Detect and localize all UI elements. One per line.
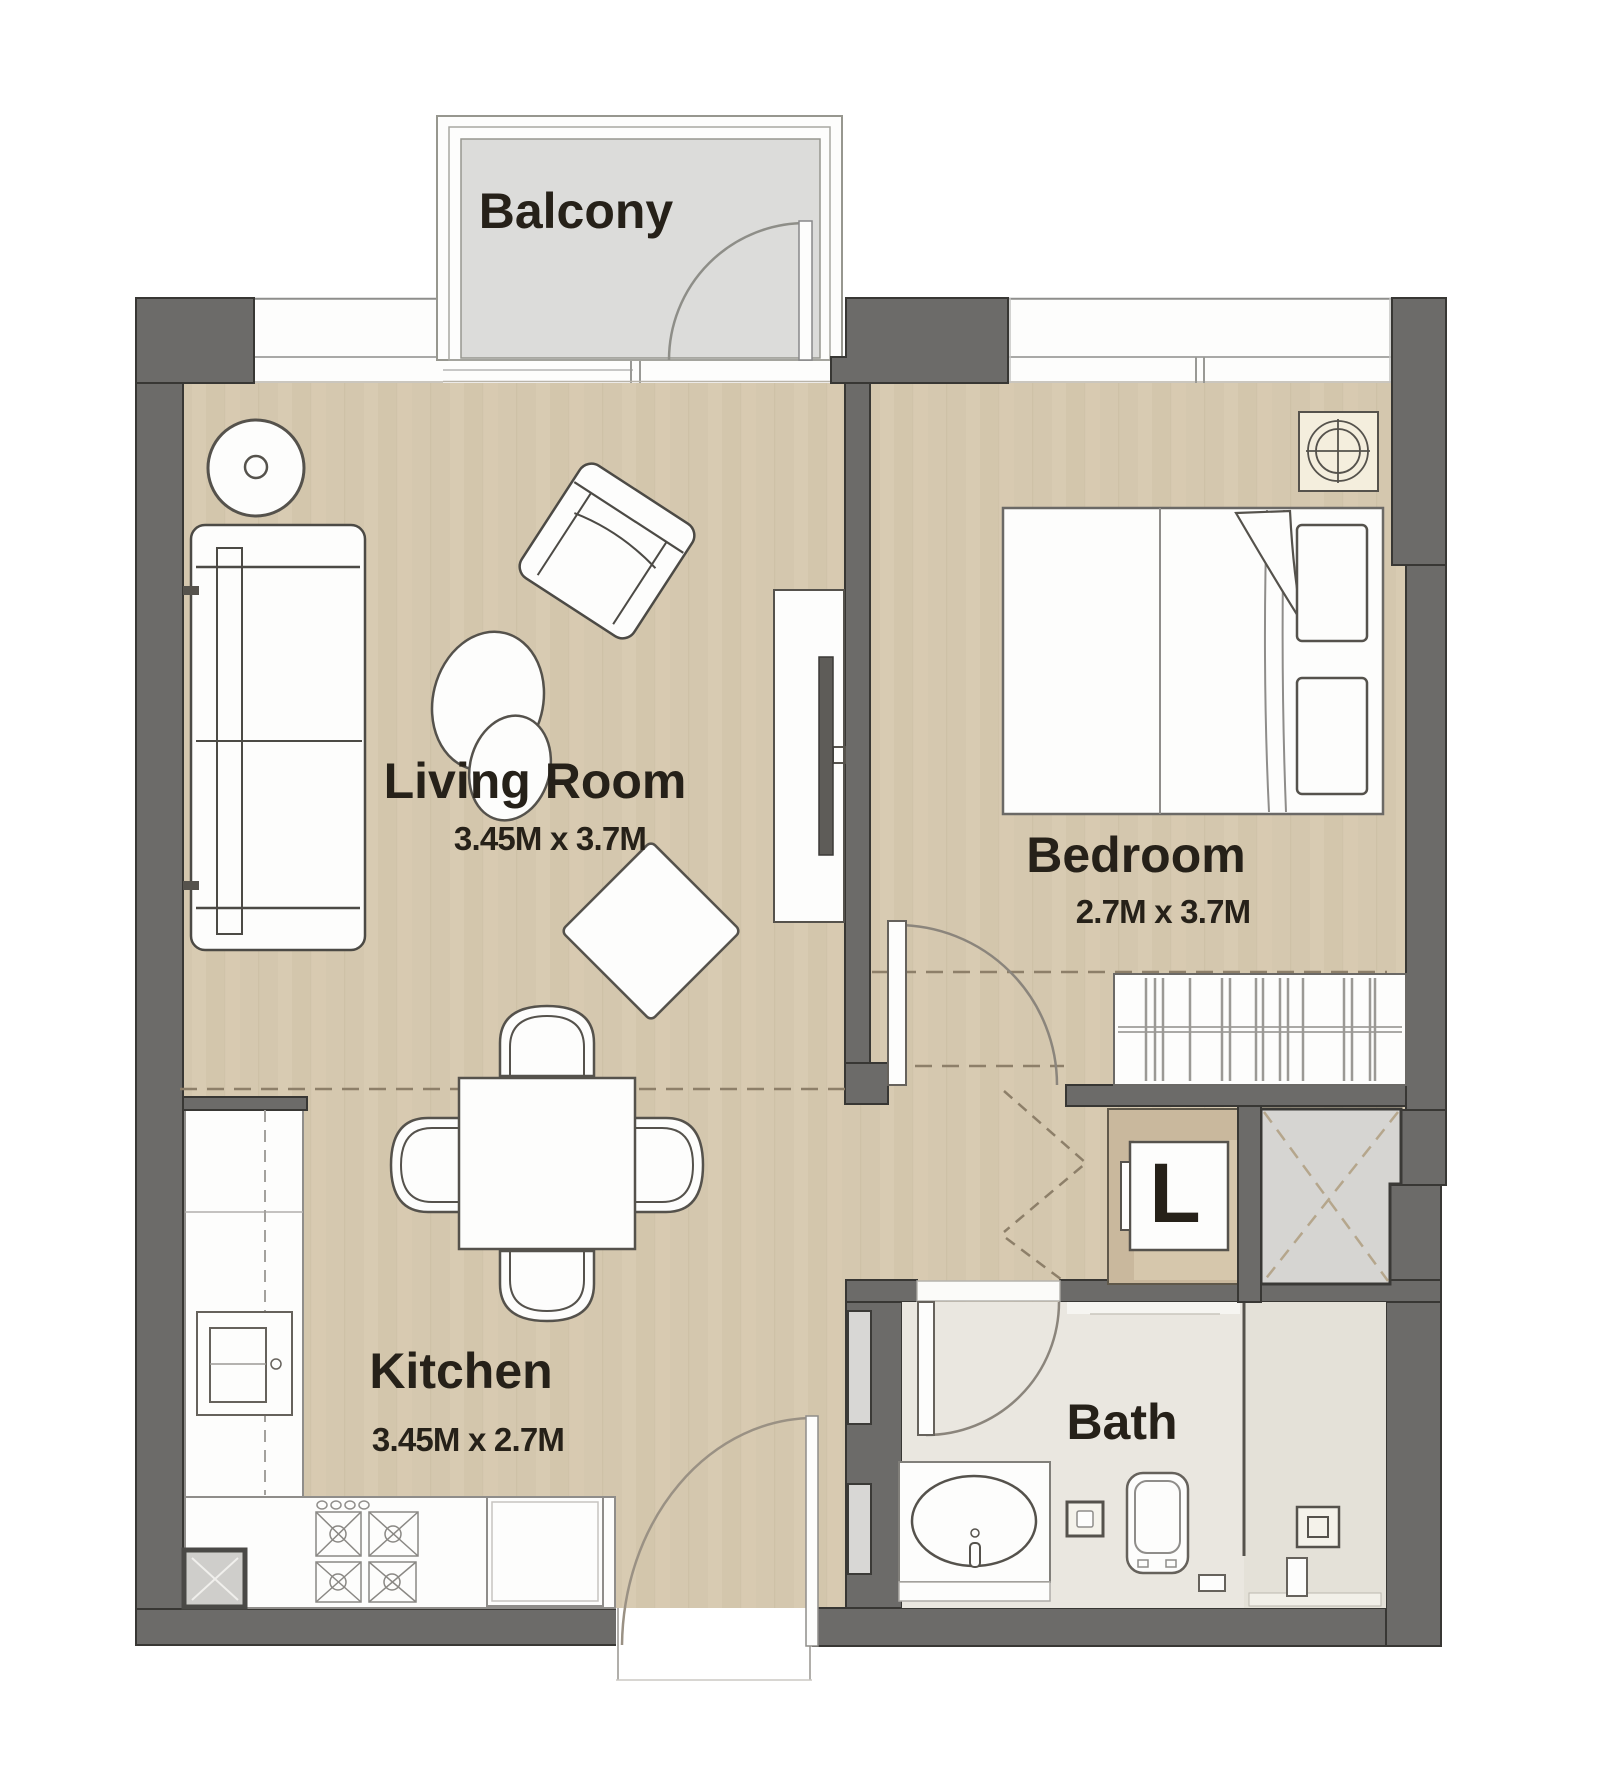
svg-text:3.45M x 3.7M: 3.45M x 3.7M [454,820,646,857]
svg-text:3.45M x 2.7M: 3.45M x 2.7M [372,1421,564,1458]
svg-text:2.7M x 3.7M: 2.7M x 3.7M [1076,893,1251,930]
svg-text:Bath: Bath [1066,1394,1177,1450]
svg-text:Bedroom: Bedroom [1026,827,1245,883]
svg-text:Balcony: Balcony [479,183,674,239]
svg-text:Kitchen: Kitchen [369,1343,552,1399]
svg-text:Living Room: Living Room [384,753,687,809]
svg-text:L: L [1149,1146,1200,1240]
